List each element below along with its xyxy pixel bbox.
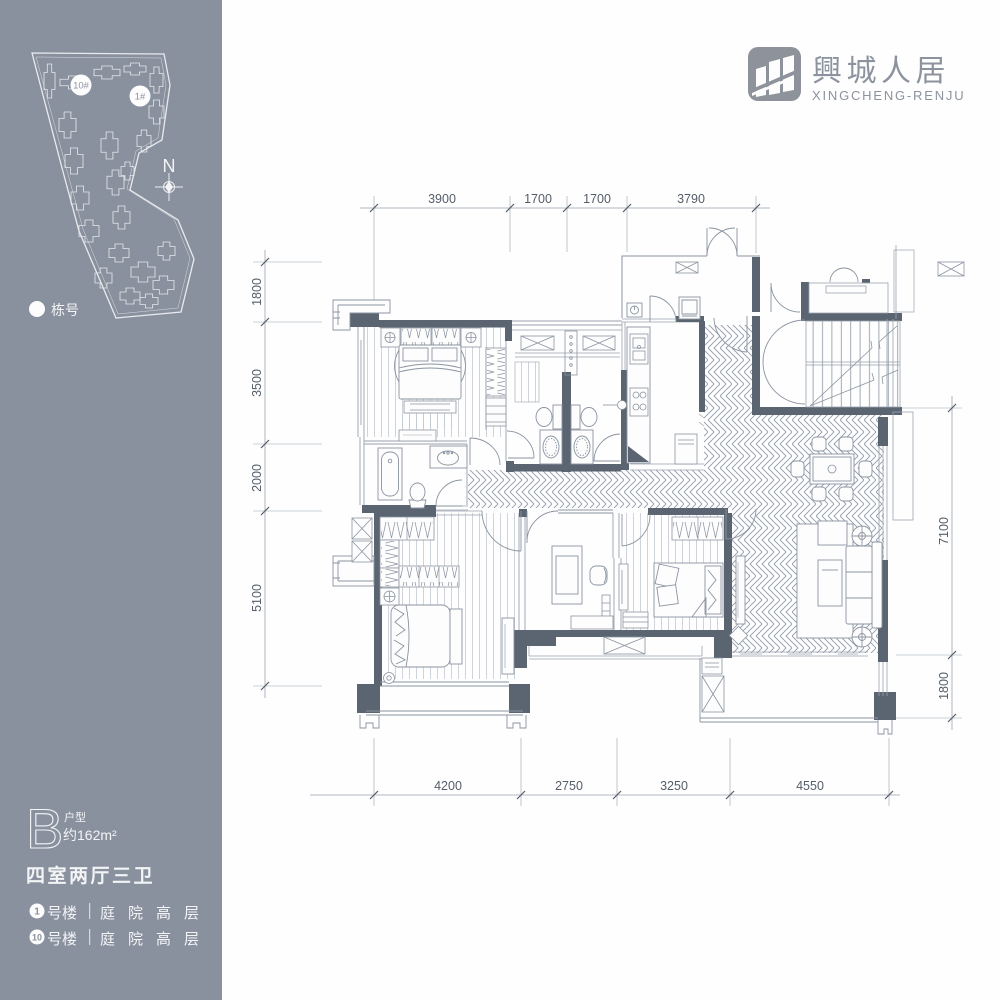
svg-text:B: B (26, 797, 63, 860)
svg-text:1700: 1700 (524, 192, 552, 206)
svg-text:1700: 1700 (583, 192, 611, 206)
svg-text:2000: 2000 (250, 464, 264, 492)
svg-text:3500: 3500 (250, 369, 264, 397)
svg-text:约162m²: 约162m² (63, 827, 117, 843)
svg-text:四室两厅三卫: 四室两厅三卫 (26, 864, 155, 887)
svg-text:庭院高层: 庭院高层 (100, 930, 212, 948)
svg-text:4550: 4550 (796, 779, 824, 793)
svg-text:户型: 户型 (64, 810, 86, 824)
svg-text:3790: 3790 (677, 192, 705, 206)
svg-text:10#: 10# (73, 81, 90, 92)
svg-text:10: 10 (32, 933, 42, 943)
svg-text:XINGCHENG-RENJU: XINGCHENG-RENJU (812, 88, 965, 103)
svg-text:7100: 7100 (937, 517, 951, 545)
svg-text:4200: 4200 (434, 779, 462, 793)
svg-text:1: 1 (34, 907, 40, 918)
svg-text:5100: 5100 (250, 584, 264, 612)
svg-text:2750: 2750 (555, 779, 583, 793)
svg-text:1800: 1800 (937, 672, 951, 700)
svg-text:1#: 1# (135, 92, 146, 103)
svg-text:3250: 3250 (660, 779, 688, 793)
svg-text:3900: 3900 (428, 192, 456, 206)
svg-text:号楼: 号楼 (47, 905, 77, 922)
svg-text:庭院高层: 庭院高层 (100, 904, 212, 922)
svg-text:号楼: 号楼 (47, 931, 77, 948)
svg-text:1800: 1800 (250, 278, 264, 306)
svg-text:興城人居: 興城人居 (812, 55, 950, 88)
svg-text:栋号: 栋号 (51, 302, 79, 318)
